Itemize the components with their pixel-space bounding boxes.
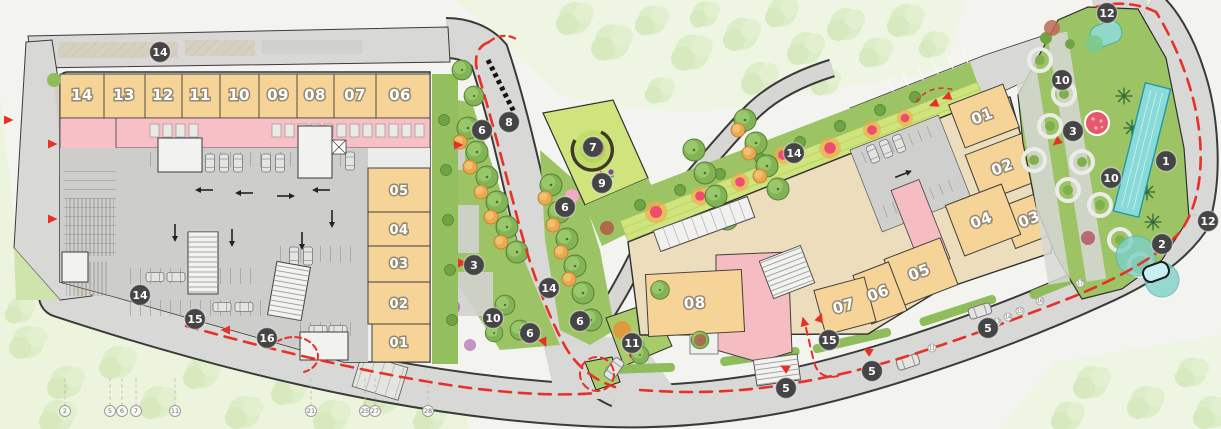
- map-marker-15: 15: [185, 309, 206, 330]
- map-marker-10: 10: [1052, 70, 1073, 91]
- unit-label-06: 06: [389, 86, 411, 104]
- svg-text:12: 12: [1099, 7, 1114, 20]
- map-marker-6: 6: [555, 197, 576, 218]
- svg-text:21: 21: [307, 407, 315, 415]
- svg-text:15: 15: [187, 313, 202, 326]
- svg-text:5: 5: [108, 407, 112, 415]
- svg-text:5: 5: [868, 365, 876, 378]
- svg-text:6: 6: [120, 407, 124, 415]
- svg-text:11: 11: [929, 346, 935, 352]
- unit-label-11: 11: [189, 86, 211, 104]
- svg-text:5: 5: [782, 382, 790, 395]
- map-marker-8: 8: [499, 112, 520, 133]
- map-marker-16: 16: [257, 328, 278, 349]
- svg-text:14: 14: [786, 147, 802, 160]
- map-marker-14: 14: [130, 285, 151, 306]
- svg-text:14: 14: [1005, 315, 1011, 321]
- unit-label-08: 08: [304, 86, 326, 104]
- svg-text:7: 7: [589, 141, 597, 154]
- map-marker-6: 6: [520, 323, 541, 344]
- site-plan-svg: 141312111009080706 0504030201 0102030405…: [0, 0, 1221, 429]
- corridor-storage: [150, 124, 424, 137]
- map-marker-3: 3: [1063, 121, 1084, 142]
- unit-label-10: 10: [228, 86, 250, 104]
- map-marker-12: 12: [1198, 211, 1219, 232]
- unit-label-05: 05: [389, 184, 408, 199]
- svg-text:15: 15: [821, 334, 836, 347]
- svg-text:6: 6: [576, 315, 584, 328]
- svg-text:10: 10: [485, 312, 501, 325]
- map-marker-2: 2: [1152, 234, 1173, 255]
- svg-text:14: 14: [132, 289, 148, 302]
- svg-text:2: 2: [63, 407, 67, 415]
- map-marker-12: 12: [1097, 3, 1118, 24]
- svg-text:5: 5: [984, 322, 992, 335]
- map-marker-6: 6: [570, 311, 591, 332]
- map-marker-15: 15: [819, 330, 840, 351]
- svg-text:9: 9: [598, 177, 606, 190]
- unit-label-08: 08: [683, 293, 706, 312]
- svg-text:8: 8: [505, 116, 513, 129]
- flower-feature: [1085, 111, 1109, 135]
- map-marker-5: 5: [776, 378, 797, 399]
- map-marker-10: 10: [1101, 168, 1122, 189]
- svg-text:1: 1: [1162, 155, 1170, 168]
- map-marker-14: 14: [150, 42, 171, 63]
- map-marker-10: 10: [483, 308, 504, 329]
- svg-text:25: 25: [361, 407, 369, 415]
- map-marker-14: 14: [539, 278, 560, 299]
- map-marker-5: 5: [978, 318, 999, 339]
- map-marker-9: 9: [592, 173, 613, 194]
- unit-label-03: 03: [389, 257, 408, 272]
- map-marker-7: 7: [583, 137, 604, 158]
- road-bubble-14: 14: [1004, 313, 1012, 321]
- svg-text:17: 17: [1077, 281, 1083, 287]
- road-bubble-11: 11: [928, 344, 936, 352]
- road-bubble-16: 16: [1036, 297, 1044, 305]
- svg-text:3: 3: [470, 259, 478, 272]
- svg-text:2: 2: [1158, 238, 1166, 251]
- svg-text:10: 10: [1054, 74, 1070, 87]
- map-marker-1: 1: [1156, 151, 1177, 172]
- road-bubble-17: 17: [1076, 279, 1084, 287]
- unit-label-07: 07: [344, 86, 366, 104]
- svg-text:14: 14: [152, 46, 168, 59]
- map-marker-14: 14: [784, 143, 805, 164]
- svg-text:12: 12: [1200, 215, 1215, 228]
- svg-text:14: 14: [541, 282, 557, 295]
- map-marker-3: 3: [464, 255, 485, 276]
- svg-text:16: 16: [1037, 299, 1043, 305]
- site-plan: 141312111009080706 0504030201 0102030405…: [0, 0, 1221, 429]
- road-bubble-15: 15: [1016, 307, 1024, 315]
- svg-text:6: 6: [561, 201, 569, 214]
- svg-text:7: 7: [134, 407, 138, 415]
- svg-text:10: 10: [1103, 172, 1119, 185]
- map-marker-6: 6: [472, 120, 493, 141]
- map-marker-11: 11: [622, 333, 643, 354]
- svg-text:15: 15: [1017, 309, 1023, 315]
- svg-text:3: 3: [1069, 125, 1077, 138]
- unit-label-13: 13: [113, 86, 135, 104]
- svg-text:11: 11: [171, 407, 179, 415]
- svg-text:27: 27: [371, 407, 379, 415]
- svg-text:16: 16: [259, 332, 275, 345]
- svg-text:6: 6: [478, 124, 486, 137]
- unit-label-14: 14: [71, 86, 93, 104]
- svg-text:11: 11: [624, 337, 639, 350]
- unit-label-12: 12: [152, 86, 174, 104]
- svg-text:6: 6: [526, 327, 534, 340]
- unit-label-09: 09: [267, 86, 289, 104]
- unit-label-02: 02: [389, 297, 408, 312]
- unit-label-04: 04: [389, 223, 408, 238]
- svg-text:28: 28: [424, 407, 432, 415]
- unit-label-01: 01: [389, 336, 408, 351]
- left-building-unit-labels: 141312111009080706: [71, 86, 411, 104]
- map-marker-5: 5: [862, 361, 883, 382]
